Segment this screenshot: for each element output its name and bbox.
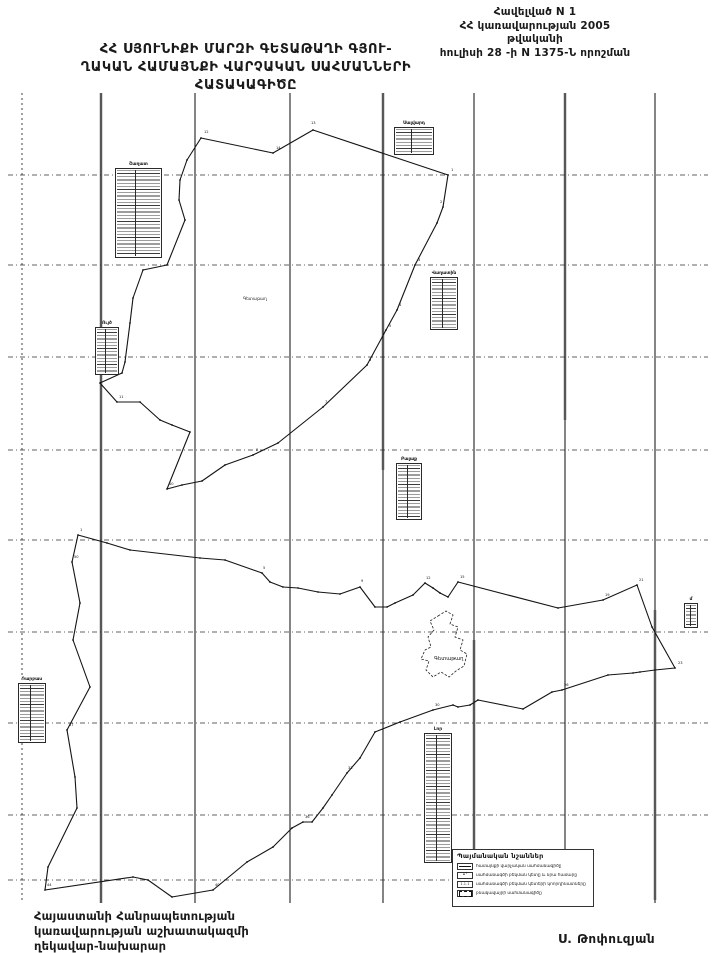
- boundary-turning-point: [269, 581, 271, 583]
- boundary-turning-point: [252, 454, 254, 456]
- coordinate-table-label: մ: [671, 597, 711, 603]
- boundary-turning-point: [317, 591, 319, 593]
- boundary-turning-point: [432, 587, 434, 589]
- legend-title: Պայմանական նշաններ: [457, 852, 590, 860]
- coordinate-table-label: Լոր: [411, 727, 465, 733]
- point-number-label: 8: [256, 448, 259, 452]
- point-number-label: 3: [418, 258, 420, 262]
- boundary-turning-point: [651, 626, 653, 628]
- boundary-turning-point: [414, 264, 416, 266]
- area-label: Գետաթաղ: [243, 296, 267, 301]
- boundary-turning-point: [99, 382, 101, 384]
- coordinate-table-rows: [117, 170, 160, 256]
- map-legend: Պայմանական նշաններ համայնքի վարչական սահ…: [452, 849, 594, 907]
- boundary-turning-point: [447, 596, 449, 598]
- boundary-turning-point: [201, 480, 203, 482]
- point-number-label: 23: [678, 661, 683, 665]
- point-number-label: 47: [69, 723, 74, 727]
- boundary-turning-point: [142, 269, 144, 271]
- point-number-label: 4: [399, 303, 402, 307]
- point-number-label: 13: [311, 121, 316, 125]
- boundary-turning-point: [602, 599, 604, 601]
- coordinate-table-icon: [457, 881, 473, 888]
- legend-row: սահմանագծի բեկման կետը և նրա համարը: [457, 871, 590, 880]
- settlement-outline: [421, 611, 467, 677]
- boundary-turning-point: [636, 584, 638, 586]
- boundary-turning-point: [396, 309, 398, 311]
- settlement-line-icon: [457, 890, 473, 897]
- boundary-turning-point: [282, 586, 284, 588]
- boundary-turning-point: [224, 559, 226, 561]
- boundary-turning-point: [71, 561, 73, 563]
- boundary-turning-point: [439, 592, 441, 594]
- boundary-turning-point: [394, 602, 396, 604]
- boundary-turning-point: [181, 484, 183, 486]
- coordinate-table: Վաղատին: [430, 277, 458, 330]
- boundary-turning-point: [166, 264, 168, 266]
- point-number-label: 30: [435, 703, 440, 707]
- point-number-label: 44: [47, 883, 52, 887]
- coordinate-table-rows: [97, 329, 117, 373]
- coordinate-table: Սալվարդ: [394, 127, 434, 155]
- boundary-turning-point: [457, 581, 459, 583]
- turning-point-icon: [457, 872, 473, 879]
- legend-item-label: սահմանագծի բեկման կետերի կոորդինատները: [476, 882, 586, 887]
- coordinate-table-rows: [396, 129, 432, 153]
- point-number-label: 15: [460, 575, 465, 579]
- point-number-label: 19: [605, 593, 610, 597]
- boundary-turning-point: [200, 137, 202, 139]
- boundary-turning-point: [331, 794, 333, 796]
- boundary-turning-point: [311, 821, 313, 823]
- boundary-turning-point: [322, 807, 324, 809]
- signatory-line1: Հայաստանի Հանրապետության: [34, 909, 249, 924]
- boundary-turning-point: [106, 542, 108, 544]
- boundary-turning-point: [359, 757, 361, 759]
- boundary-turning-point: [79, 602, 81, 604]
- coordinate-table: Ույծ: [95, 327, 119, 375]
- coordinate-table: Բալաք: [396, 463, 422, 520]
- coordinate-table-label: Բալաք: [383, 457, 435, 463]
- map-area: ԳետաթաղԳետաթաղ12131412345678101115912151…: [0, 0, 715, 953]
- boundary-turning-point: [607, 674, 609, 676]
- coordinate-table-rows: [426, 735, 450, 861]
- boundary-turning-point: [212, 889, 214, 891]
- legend-row: սահմանագծի բեկման կետերի կոորդինատները: [457, 880, 590, 889]
- boundary-turning-point: [374, 606, 376, 608]
- boundary-turning-point: [366, 364, 368, 366]
- boundary-turning-point: [359, 586, 361, 588]
- boundary-turning-point: [189, 431, 191, 433]
- boundary-turning-point: [47, 866, 49, 868]
- boundary-turning-point: [442, 206, 444, 208]
- point-number-label: 50: [74, 555, 79, 559]
- coordinate-table-label: Շաղատ: [102, 162, 175, 168]
- point-number-label: 21: [639, 578, 644, 582]
- boundary-turning-point: [166, 488, 168, 490]
- boundary-map-svg: ԳետաթաղԳետաթաղ12131412345678101115912151…: [0, 0, 715, 953]
- boundary-turning-point: [346, 772, 348, 774]
- signatory-block: Հայաստանի Հանրապետության կառավարության ա…: [34, 909, 249, 953]
- boundary-turning-point: [171, 896, 173, 898]
- point-number-label: 12: [426, 576, 431, 580]
- point-number-label: 36: [305, 815, 310, 819]
- point-number-label: 40: [215, 883, 220, 887]
- boundary-turning-point: [322, 406, 324, 408]
- boundary-turning-point: [184, 219, 186, 221]
- point-number-label: 14: [276, 146, 281, 150]
- boundary-turning-point: [76, 807, 78, 809]
- boundary-turning-point: [639, 671, 641, 673]
- boundary-turning-point: [272, 152, 274, 154]
- point-number-label: 6: [369, 358, 372, 362]
- boundary-turning-point: [297, 587, 299, 589]
- coordinate-table: մ: [684, 603, 698, 628]
- boundary-turning-point: [179, 179, 181, 181]
- legend-item-label: սահմանագծի բեկման կետը և նրա համարը: [476, 873, 577, 878]
- boundary-turning-point: [447, 174, 449, 176]
- legend-item-label: համայնքի վարչական սահմանագիծը: [476, 864, 561, 869]
- settlement-label: Գետաթաղ: [434, 656, 464, 662]
- boundary-turning-point: [399, 721, 401, 723]
- coordinate-table: Դարբաս: [18, 683, 46, 743]
- signatory-line3: ղեկավար-նախարար: [34, 939, 249, 953]
- coordinate-table-label: Վաղատին: [417, 271, 471, 277]
- boundary-turning-point: [277, 442, 279, 444]
- point-number-label: 5: [389, 324, 391, 328]
- boundary-turning-point: [312, 129, 314, 131]
- point-number-label: 26: [564, 683, 569, 687]
- boundary-turning-point: [186, 159, 188, 161]
- boundary-turning-point: [147, 879, 149, 881]
- coordinate-table-rows: [686, 605, 696, 626]
- point-number-label: 5: [263, 566, 265, 570]
- boundary-turning-point: [386, 606, 388, 608]
- boundary-turning-point: [72, 639, 74, 641]
- point-number-label: 12: [204, 130, 209, 134]
- legend-row: համայնքի վարչական սահմանագիծը: [457, 862, 590, 871]
- coordinate-table-label: Դարբաս: [5, 677, 59, 683]
- point-number-label: 7: [325, 400, 327, 404]
- boundary-turning-point: [77, 534, 79, 536]
- boundary-turning-point: [385, 329, 387, 331]
- boundary-turning-point: [291, 827, 293, 829]
- boundary-turning-point: [424, 582, 426, 584]
- point-number-label: 2: [440, 200, 442, 204]
- boundary-turning-point: [374, 731, 376, 733]
- boundary-turning-point: [124, 361, 126, 363]
- south-boundary-polygon: [45, 535, 675, 897]
- signatory-line2: կառավարության աշխատակազմի: [34, 924, 249, 939]
- boundary-turning-point: [44, 889, 46, 891]
- boundary-turning-point: [561, 689, 563, 691]
- boundary-turning-point: [272, 846, 274, 848]
- boundary-turning-point: [132, 876, 134, 878]
- boundary-turning-point: [139, 401, 141, 403]
- boundary-turning-point: [302, 821, 304, 823]
- boundary-line-icon: [457, 863, 473, 870]
- boundary-turning-point: [339, 593, 341, 595]
- legend-row: բնակավայրի սահմանագիծը: [457, 889, 590, 898]
- boundary-turning-point: [469, 704, 471, 706]
- coordinate-table-rows: [398, 465, 420, 518]
- boundary-turning-point: [199, 557, 201, 559]
- boundary-turning-point: [452, 704, 454, 706]
- coordinate-table-label: Ույծ: [82, 321, 132, 327]
- boundary-turning-point: [66, 729, 68, 731]
- boundary-turning-point: [436, 222, 438, 224]
- coordinate-table: Շաղատ: [115, 168, 162, 258]
- boundary-turning-point: [132, 297, 134, 299]
- boundary-turning-point: [557, 607, 559, 609]
- coordinate-table-rows: [432, 279, 456, 328]
- boundary-turning-point: [129, 549, 131, 551]
- boundary-turning-point: [522, 708, 524, 710]
- boundary-turning-point: [159, 419, 161, 421]
- point-number-label: 9: [361, 579, 364, 583]
- boundary-turning-point: [171, 424, 173, 426]
- point-number-label: 11: [119, 395, 124, 399]
- boundary-turning-point: [654, 669, 656, 671]
- point-number-label: 1: [80, 528, 82, 532]
- boundary-turning-point: [89, 686, 91, 688]
- boundary-turning-point: [246, 861, 248, 863]
- coordinate-table-rows: [20, 685, 44, 741]
- document-page: Հավելված N 1 ՀՀ կառավարության 2005 թվակա…: [0, 0, 715, 953]
- boundary-turning-point: [412, 594, 414, 596]
- point-number-label: 10: [169, 482, 174, 486]
- boundary-turning-point: [632, 672, 634, 674]
- coordinate-table: Լոր: [424, 733, 452, 863]
- coordinate-table-label: Սալվարդ: [381, 121, 447, 127]
- signature-name: Ս. Թոփուզյան: [558, 932, 655, 946]
- boundary-turning-point: [551, 691, 553, 693]
- point-number-label: 1: [451, 168, 453, 172]
- boundary-turning-point: [178, 199, 180, 201]
- boundary-turning-point: [674, 667, 676, 669]
- boundary-turning-point: [261, 572, 263, 574]
- boundary-turning-point: [432, 709, 434, 711]
- boundary-turning-point: [457, 706, 459, 708]
- boundary-turning-point: [121, 372, 123, 374]
- legend-item-label: բնակավայրի սահմանագիծը: [476, 891, 542, 896]
- boundary-turning-point: [224, 464, 226, 466]
- boundary-turning-point: [116, 401, 118, 403]
- boundary-turning-point: [477, 699, 479, 701]
- point-number-label: 33: [348, 766, 353, 770]
- boundary-turning-point: [74, 776, 76, 778]
